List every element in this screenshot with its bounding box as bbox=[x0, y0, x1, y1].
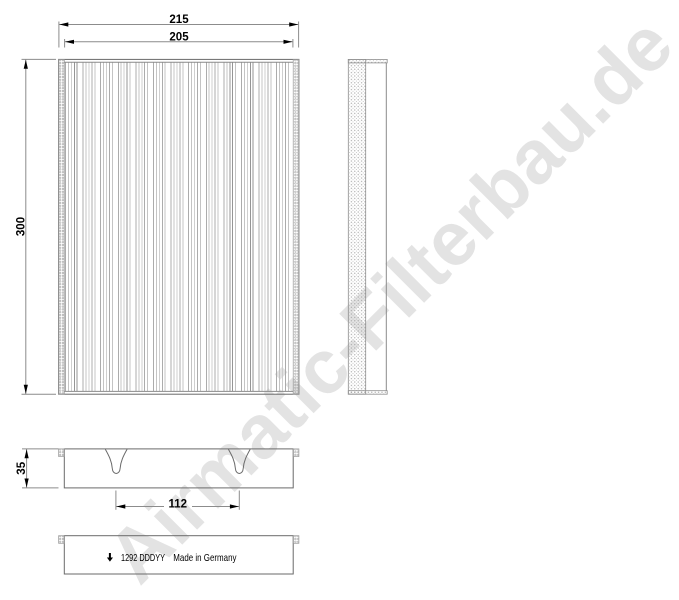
svg-text:300: 300 bbox=[15, 217, 27, 236]
svg-text:1292 DDDYY: 1292 DDDYY bbox=[121, 553, 165, 564]
svg-text:35: 35 bbox=[16, 461, 28, 474]
svg-text:Made in Germany: Made in Germany bbox=[173, 553, 237, 564]
svg-text:112: 112 bbox=[169, 498, 188, 510]
svg-text:205: 205 bbox=[169, 32, 189, 44]
svg-text:215: 215 bbox=[169, 14, 189, 26]
